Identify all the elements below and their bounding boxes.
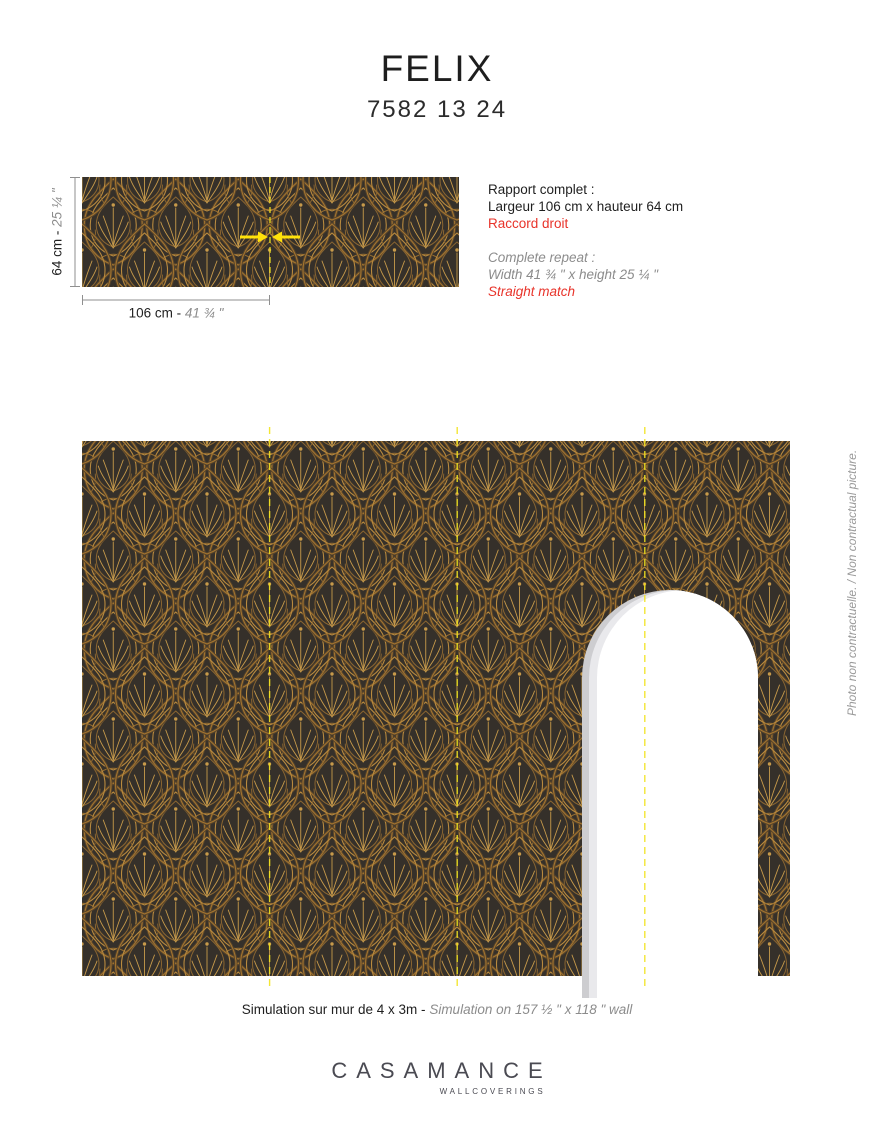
repeat-info-fr-match: Raccord droit bbox=[488, 215, 683, 232]
product-code: 7582 13 24 bbox=[0, 96, 874, 124]
repeat-info: Rapport complet : Largeur 106 cm x haute… bbox=[488, 181, 683, 300]
brand-footer: CASAMANCE WALLCOVERINGS bbox=[0, 1058, 874, 1099]
width-dimension-line bbox=[82, 294, 270, 306]
product-sheet-page: FELIX 7582 13 24 64 cm - 25 ¼ " 10 bbox=[0, 0, 874, 1122]
width-dimension-label: 106 cm - 41 ¾ " bbox=[129, 306, 224, 321]
repeat-info-en-match: Straight match bbox=[488, 283, 683, 300]
repeat-swatch bbox=[82, 177, 459, 287]
repeat-info-en-title: Complete repeat : bbox=[488, 249, 683, 266]
side-note: Photo non contractuelle. / Non contractu… bbox=[845, 420, 859, 716]
repeat-info-fr-size: Largeur 106 cm x hauteur 64 cm bbox=[488, 198, 683, 215]
simulation-caption: Simulation sur mur de 4 x 3m - Simulatio… bbox=[0, 1002, 874, 1017]
repeat-info-en-size: Width 41 ¾ " x height 25 ¼ " bbox=[488, 266, 683, 283]
page-title: FELIX bbox=[0, 48, 874, 90]
brand-tagline: WALLCOVERINGS bbox=[331, 1087, 545, 1096]
height-dimension-line bbox=[69, 177, 81, 287]
height-dimension-label: 64 cm - 25 ¼ " bbox=[50, 188, 65, 275]
wall-simulation bbox=[82, 421, 790, 1000]
repeat-info-fr-title: Rapport complet : bbox=[488, 181, 683, 198]
door-arch bbox=[582, 590, 773, 998]
brand-wordmark: CASAMANCE bbox=[331, 1058, 551, 1084]
